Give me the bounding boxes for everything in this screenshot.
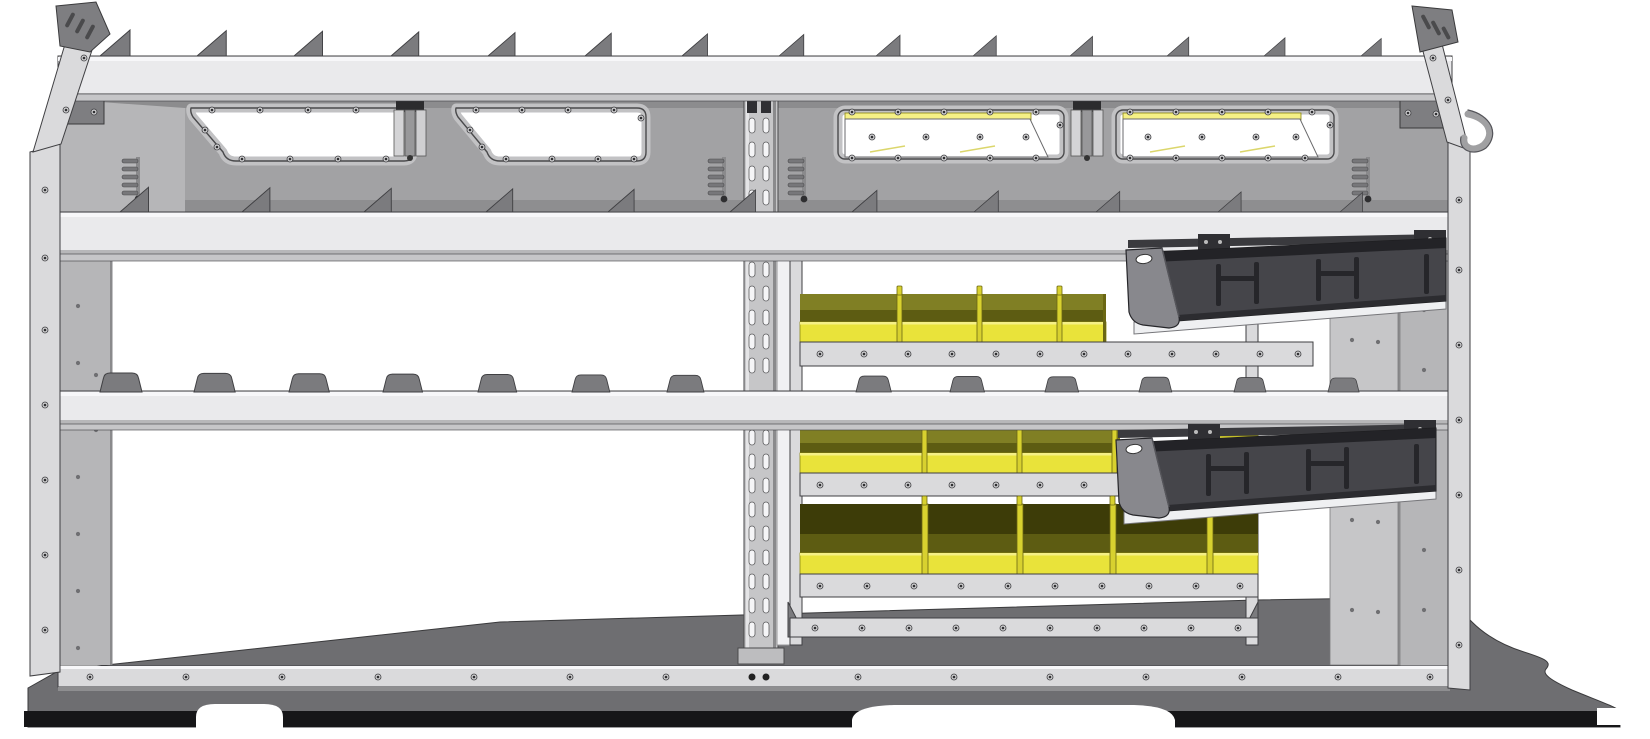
van-shelving-rendering: van-shelving-unit-side-view [0,0,1650,739]
corner-bracket-right [1412,6,1458,52]
window-cover-4 [1116,109,1334,161]
bin-rail-1 [800,342,1313,366]
top-shelf-fins [100,30,1381,56]
corner-bracket-left [56,2,110,52]
utility-hook [1461,110,1493,152]
divider-block-row [100,373,1359,392]
base-rail [58,666,1450,691]
clamp-mount-2 [1071,92,1103,161]
window-cutout-2 [456,107,646,162]
screenshot-stage: van-shelving-unit-side-view [0,0,1650,739]
floor-cutout-corner-notch [1597,708,1624,725]
right-front-rail [1448,142,1470,690]
window-cover-3 [838,109,1064,161]
top-shelf [58,56,1452,101]
shelf-3 [58,391,1448,430]
window-cutout-1 [191,107,413,162]
floor-cutout-left-arch [196,704,283,728]
clamp-mount-1 [394,92,426,161]
left-front-rail [30,144,60,676]
upright-foot [738,648,784,664]
floor-cutout-wheel-arch [852,705,1175,728]
